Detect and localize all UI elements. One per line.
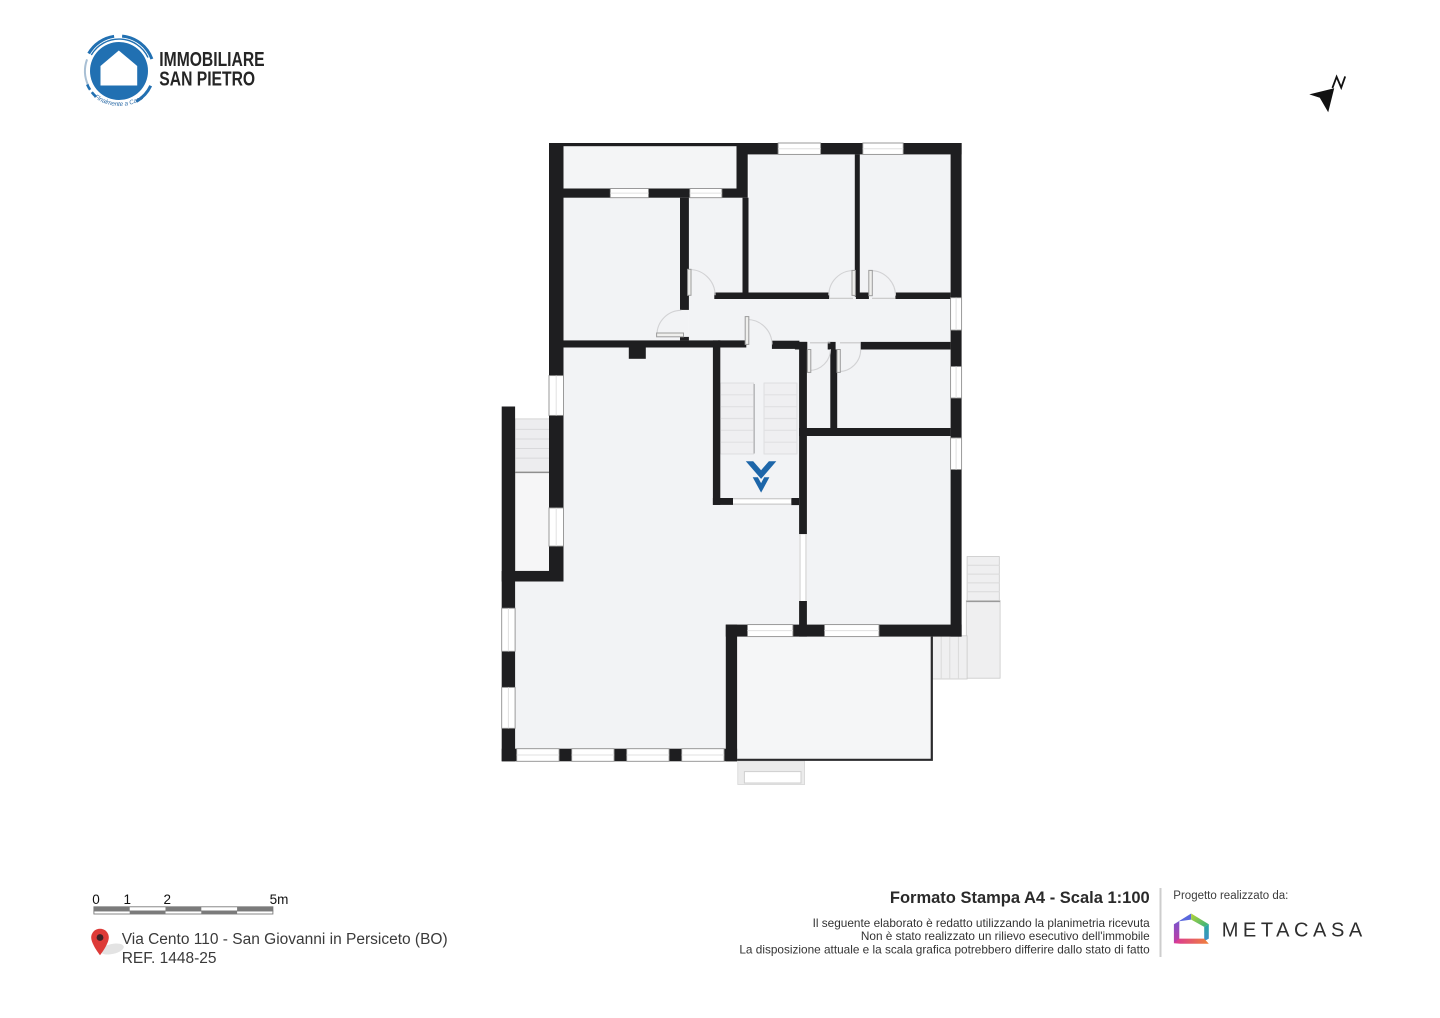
svg-text:Non è stato realizzato un rili: Non è stato realizzato un rilievo esecut…: [861, 929, 1150, 943]
svg-text:0: 0: [92, 892, 100, 907]
svg-text:5m: 5m: [270, 892, 289, 907]
svg-text:La disposizione attuale e la s: La disposizione attuale e la scala grafi…: [739, 943, 1150, 957]
svg-text:Via Cento 110 - San Giovanni i: Via Cento 110 - San Giovanni in Persicet…: [122, 931, 448, 948]
svg-text:Progetto realizzato da:: Progetto realizzato da:: [1173, 890, 1288, 902]
svg-text:Formato Stampa A4 - Scala 1:10: Formato Stampa A4 - Scala 1:100: [890, 889, 1150, 907]
svg-text:SAN PIETRO: SAN PIETRO: [159, 68, 255, 91]
svg-text:REF. 1448-25: REF. 1448-25: [122, 950, 217, 967]
svg-text:Il seguente elaborato è redatt: Il seguente elaborato è redatto utilizza…: [813, 916, 1151, 930]
svg-text:1: 1: [124, 892, 132, 907]
svg-text:2: 2: [164, 892, 172, 907]
